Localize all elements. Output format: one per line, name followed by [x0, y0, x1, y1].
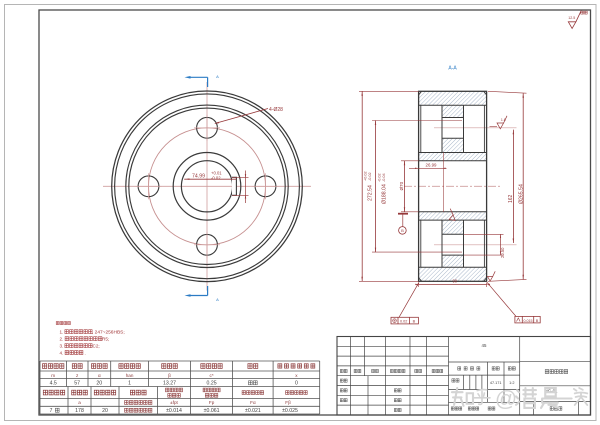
svg-text:57: 57: [74, 381, 80, 387]
svg-text:han: han: [126, 373, 134, 378]
svg-text:±fpt: ±fpt: [170, 400, 178, 405]
svg-text:0.02: 0.02: [400, 319, 407, 323]
svg-text:2.: 2.: [60, 336, 64, 341]
svg-text:A: A: [216, 74, 219, 79]
svg-text:-0.04: -0.04: [382, 173, 386, 182]
svg-text:m: m: [51, 373, 55, 378]
svg-text:-0.02: -0.02: [211, 175, 221, 180]
svg-text:, 247~256HBS;: , 247~256HBS;: [92, 329, 125, 335]
svg-text:7: 7: [50, 408, 53, 414]
svg-text:162: 162: [508, 194, 514, 203]
svg-text:1: 1: [128, 381, 131, 387]
svg-text:178: 178: [75, 408, 84, 414]
svg-text:-0.02: -0.02: [378, 173, 382, 182]
svg-text:4.5: 4.5: [50, 381, 57, 387]
svg-text:Ø265.54: Ø265.54: [518, 184, 524, 204]
svg-text:26.99: 26.99: [426, 163, 438, 168]
svg-text:A: A: [216, 297, 219, 302]
svg-text:B: B: [536, 319, 539, 323]
svg-text:0: 0: [295, 381, 298, 387]
svg-text:-0.02: -0.02: [368, 172, 372, 181]
svg-text:Fα: Fα: [250, 400, 256, 405]
svg-text:Fp: Fp: [209, 400, 215, 405]
svg-text:90: 90: [452, 279, 457, 284]
svg-text:47.171: 47.171: [490, 381, 502, 385]
svg-text:Fβ: Fβ: [285, 400, 291, 405]
svg-text:1.6: 1.6: [501, 118, 506, 122]
svg-text:272.54: 272.54: [368, 185, 374, 201]
svg-text:45: 45: [482, 343, 487, 348]
svg-text:74.99: 74.99: [192, 174, 205, 180]
svg-text:+0.02: +0.02: [363, 171, 367, 181]
svg-text:20.50: 20.50: [500, 247, 505, 258]
svg-text:A-A: A-A: [448, 65, 457, 71]
svg-text:1:2: 1:2: [509, 381, 514, 385]
svg-text:B: B: [413, 319, 416, 323]
svg-text:B: B: [401, 228, 404, 233]
svg-text:0.015: 0.015: [524, 319, 533, 323]
svg-text:R5;: R5;: [102, 336, 109, 341]
svg-text:±0.021: ±0.021: [245, 408, 261, 414]
svg-text:.: .: [85, 350, 86, 355]
svg-text:Ø70: Ø70: [399, 181, 404, 190]
svg-text:20: 20: [96, 381, 102, 387]
svg-text:α: α: [98, 373, 101, 378]
svg-text:C2;: C2;: [93, 343, 100, 348]
svg-text:c*: c*: [210, 373, 214, 378]
svg-text:0.25: 0.25: [207, 381, 217, 387]
svg-text:20: 20: [102, 408, 108, 414]
svg-text:13.27: 13.27: [163, 381, 176, 387]
svg-text:β: β: [168, 373, 171, 378]
svg-text:1.: 1.: [60, 329, 64, 334]
svg-text:3.: 3.: [60, 343, 64, 348]
svg-text:@: @: [495, 386, 517, 411]
svg-text:Ø188.04: Ø188.04: [382, 184, 388, 204]
svg-text:a: a: [78, 400, 81, 405]
svg-text:4.: 4.: [60, 350, 64, 355]
svg-text:12.5: 12.5: [568, 16, 575, 20]
svg-text:±0.061: ±0.061: [204, 408, 220, 414]
svg-text:±0.025: ±0.025: [282, 408, 298, 414]
svg-text:±0.014: ±0.014: [166, 408, 182, 414]
svg-text:4-Ø28: 4-Ø28: [269, 107, 283, 113]
